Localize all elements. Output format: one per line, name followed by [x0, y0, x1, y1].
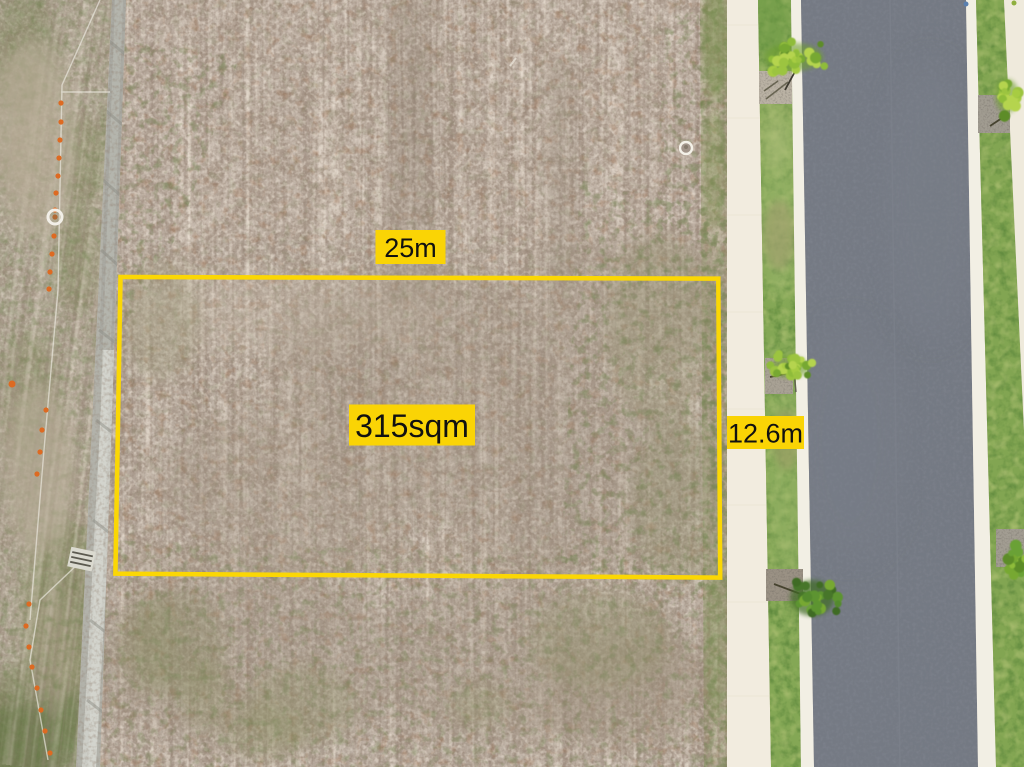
svg-text:315sqm: 315sqm	[355, 408, 469, 444]
svg-text:12.6m: 12.6m	[728, 419, 803, 449]
svg-text:25m: 25m	[384, 233, 437, 263]
